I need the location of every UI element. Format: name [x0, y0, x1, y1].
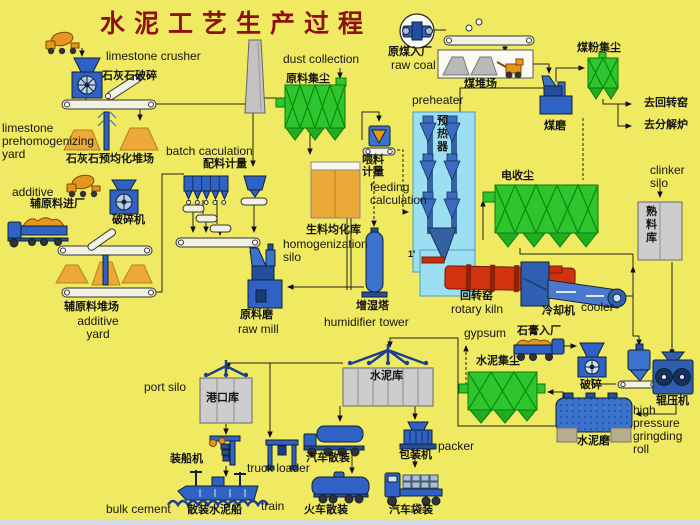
label-homo-silo-cn: 生料均化库 — [306, 225, 361, 237]
kiln-burner-icon — [422, 257, 444, 263]
label-limestone-crusher-cn: 石灰石破碎 — [102, 71, 157, 83]
clinker-silo-icon — [638, 202, 682, 260]
gypsum-truck-icon — [514, 339, 564, 361]
label-train-bulk-cn: 火车散装 — [304, 505, 348, 517]
label-humidifier-en: humidifier tower — [324, 316, 409, 329]
packer-machine-icon — [400, 422, 436, 449]
cement-dust-collector-icon — [459, 372, 545, 423]
label-bulk-ship-cn: 散装水泥船 — [187, 505, 242, 517]
single-hopper-icon — [244, 176, 266, 197]
mixer-truck-icon — [67, 173, 100, 197]
clinker-hopper-icon — [618, 344, 658, 388]
gypsum-crusher-icon — [578, 343, 606, 377]
label-packer-cn: 包装机 — [399, 450, 432, 462]
coal-yard-icon — [438, 50, 533, 78]
label-additive-entry-cn: 辅原料进厂 — [30, 199, 85, 211]
label-crushing-cn: 破碎 — [580, 380, 602, 392]
label-rotary-kiln-en: rotary kiln — [451, 303, 503, 316]
label-truck-bag-cn: 汽车袋装 — [389, 505, 433, 517]
label-gypsum-cn: 石膏入厂 — [517, 326, 561, 338]
label-additive-yard-cn: 辅原料堆场 — [64, 302, 119, 314]
batch-conveyors-icon — [176, 198, 267, 247]
label-limestone-crusher-en: limestone crusher — [106, 50, 201, 63]
feeding-machine-icon — [363, 126, 395, 155]
label-raw-mill-en: raw mill — [238, 323, 279, 336]
label-dust-collection-en: dust collection — [283, 53, 359, 66]
label-cement-mill-cn: 水泥磨 — [577, 436, 610, 448]
train-wagon-icon — [312, 472, 369, 503]
raw-coal-unloader-icon — [400, 14, 434, 48]
coal-conveyor-icon — [444, 19, 534, 45]
label-bulk-cement-en: bulk cement — [106, 503, 171, 516]
limestone-crusher-icon — [72, 58, 102, 98]
bag-truck-icon — [385, 473, 442, 506]
esp-icon — [483, 185, 598, 247]
cement-process-diagram: 水泥工艺生产过程 limestone crusher 石灰石破碎 limesto… — [0, 0, 700, 525]
label-packer-en: packer — [438, 440, 474, 453]
label-ship-loader-cn: 装船机 — [170, 454, 203, 466]
label-cooler-cn: 冷却机 — [542, 306, 575, 318]
slide-edge-strip — [0, 519, 700, 525]
label-train-en: train — [261, 500, 284, 513]
label-clinker-silo-en: clinker silo — [650, 164, 685, 190]
raw-meal-dust-collector-icon — [276, 78, 346, 140]
label-coal-dust-cn: 煤粉集尘 — [577, 43, 621, 55]
label-cement-dust-cn: 水泥集尘 — [476, 356, 520, 368]
label-truck-bulk-cn: 汽车散装 — [306, 453, 350, 465]
label-esp-cn: 电收尘 — [501, 171, 534, 183]
raw-mill-icon — [248, 244, 282, 308]
label-raw-mill-cn: 原料磨 — [240, 310, 273, 322]
label-coal-mill-cn: 煤磨 — [544, 121, 566, 133]
bulk-cement-ship-icon — [168, 470, 268, 505]
label-gypsum-en: gypsum — [464, 327, 506, 340]
label-feeding-en: feeding calculation — [370, 181, 427, 207]
label-cooler-en: cooler — [581, 301, 614, 314]
ship-loader-icon — [210, 436, 241, 465]
additive-crusher-icon — [110, 180, 138, 214]
mixer-truck-icon — [46, 30, 79, 54]
label-additive-yard-en: additive yard — [70, 315, 126, 341]
label-truck-loader-en: truck loader — [247, 462, 310, 475]
label-to-calciner-cn: 去分解炉 — [644, 120, 688, 132]
roller-press-icon — [653, 352, 693, 394]
additive-stockpile-icon — [56, 255, 152, 285]
label-additive-en: additive — [12, 186, 53, 199]
label-hp-roll-en: high pressure gringding roll — [633, 404, 682, 456]
label-humidifier-cn: 增湿塔 — [356, 301, 389, 313]
label-preheater-en: preheater — [412, 94, 463, 107]
additive-truck-icon — [8, 218, 68, 247]
label-raw-meal-dust-cn: 原料集尘 — [286, 74, 330, 86]
label-batch-en: batch caculation — [166, 145, 253, 158]
page-title: 水泥工艺生产过程 — [100, 4, 372, 40]
label-clinker-silo-cn: 熟 料 库 — [646, 206, 660, 246]
label-crusher-cn: 破碎机 — [112, 215, 145, 227]
label-coal-yard-cn: 煤堆场 — [464, 79, 497, 91]
label-feeding-cn: 喂料 计量 — [362, 155, 384, 179]
label-homo-silo-en: homogenization silo — [283, 238, 368, 264]
label-batch-cn: 配料计量 — [203, 159, 247, 171]
label-cement-silo-cn: 水泥库 — [370, 371, 403, 383]
label-kiln-tick: 1′ — [408, 250, 415, 260]
label-raw-coal-en: raw coal — [391, 59, 436, 72]
homogenization-silo-icon — [311, 162, 360, 218]
coal-dust-collector-icon — [588, 52, 618, 99]
label-preheater-cn: 预 热 器 — [437, 115, 451, 155]
label-port-silo-en: port silo — [144, 381, 186, 394]
label-to-rotary-kiln-cn: 去回转窑 — [644, 98, 688, 110]
chimney-icon — [245, 40, 265, 113]
label-port-silo-cn: 港口库 — [206, 393, 239, 405]
label-limestone-yard-cn: 石灰石预均化堆场 — [66, 154, 154, 166]
batch-hoppers-icon — [184, 176, 228, 205]
